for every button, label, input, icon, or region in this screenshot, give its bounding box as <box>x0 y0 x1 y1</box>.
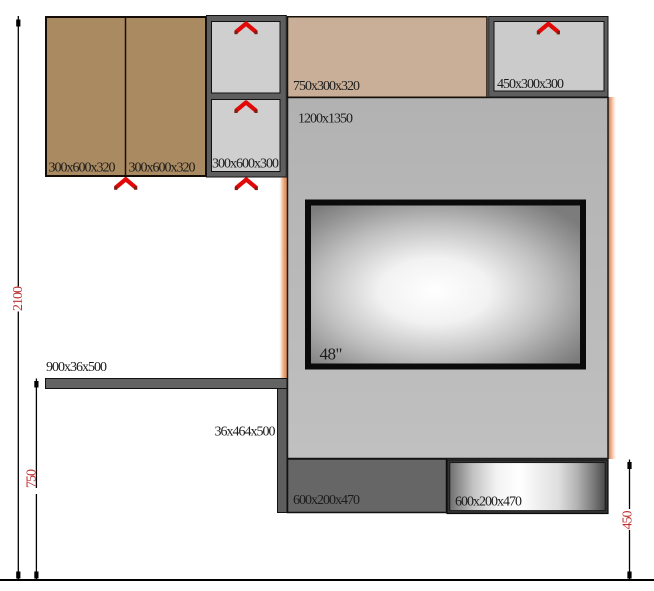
svg-text:450x300x300: 450x300x300 <box>497 77 564 92</box>
svg-text:2100: 2100 <box>11 286 26 311</box>
svg-text:36x464x500: 36x464x500 <box>215 425 276 440</box>
svg-text:1200x1350: 1200x1350 <box>298 112 353 127</box>
svg-text:300x600x300: 300x600x300 <box>212 157 279 172</box>
svg-text:300x600x320: 300x600x320 <box>129 161 196 176</box>
svg-text:900x36x500: 900x36x500 <box>46 360 107 375</box>
svg-text:750: 750 <box>25 469 40 488</box>
svg-text:450: 450 <box>621 511 636 530</box>
svg-text:300x600x320: 300x600x320 <box>49 161 116 176</box>
svg-text:600x200x470: 600x200x470 <box>455 495 522 510</box>
svg-text:48": 48" <box>320 345 342 364</box>
svg-text:750x300x320: 750x300x320 <box>293 79 360 94</box>
svg-text:600x200x470: 600x200x470 <box>293 493 360 508</box>
